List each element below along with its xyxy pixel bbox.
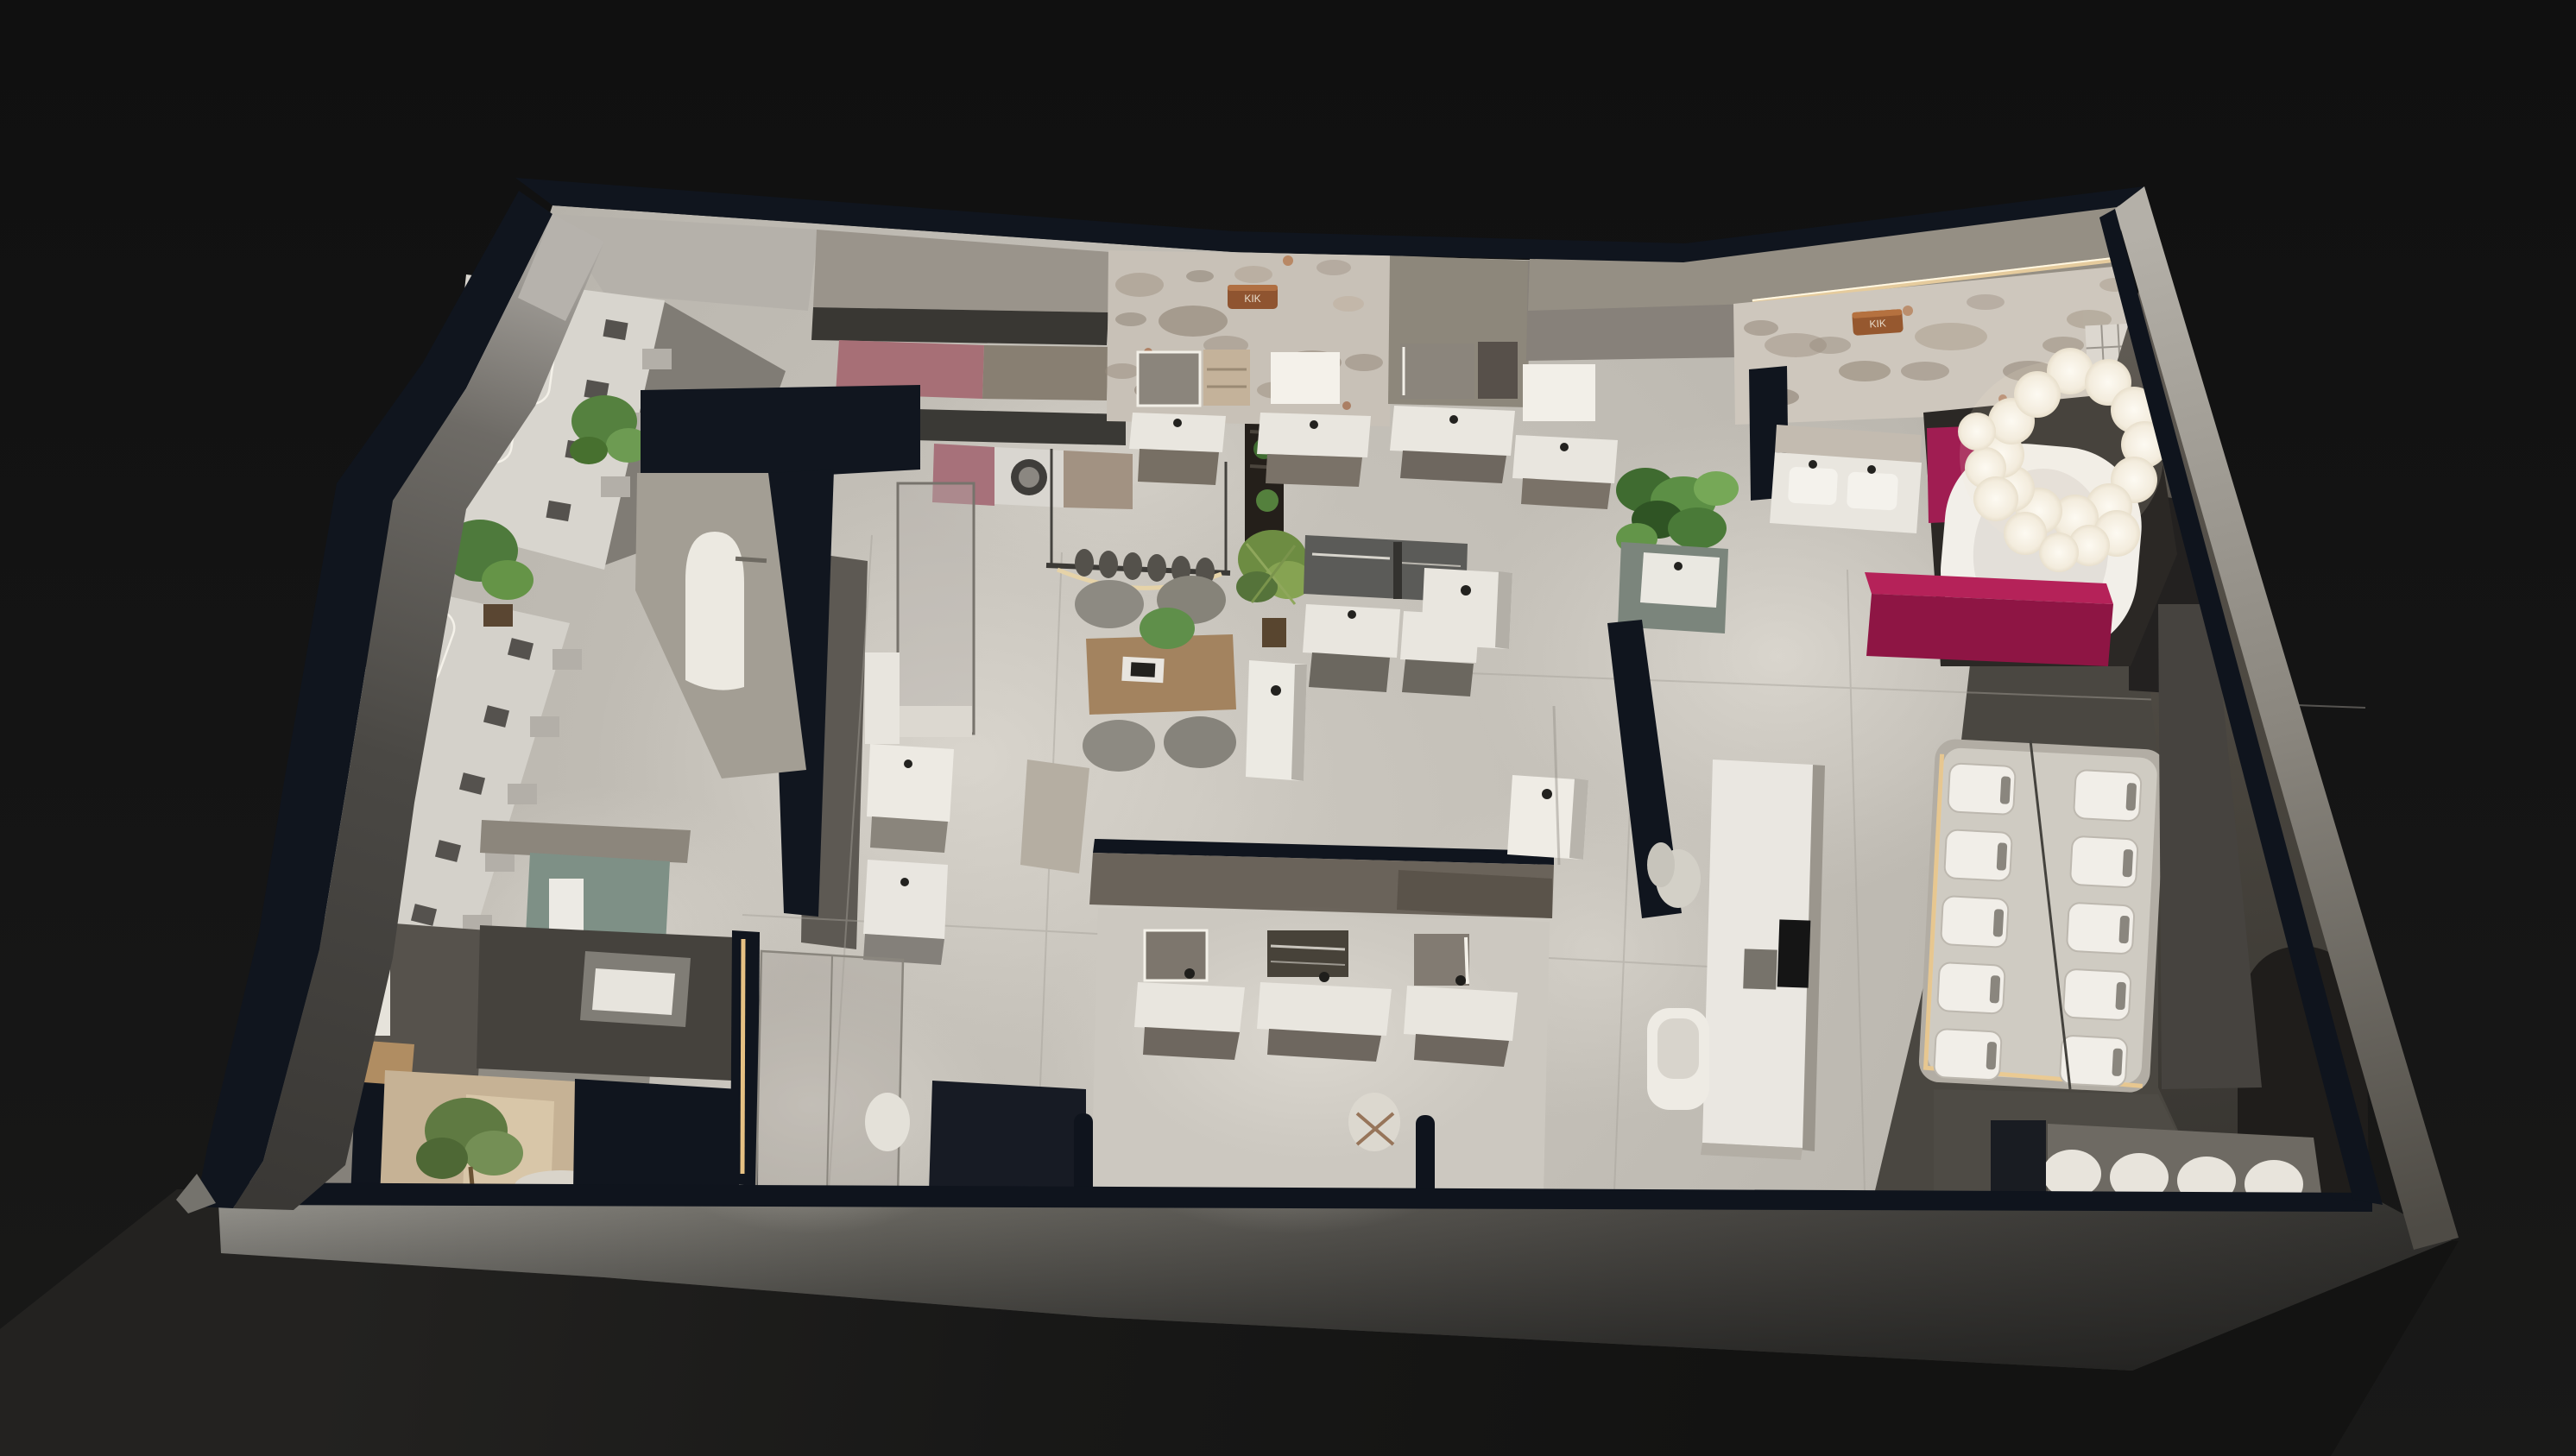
svg-text:KIK: KIK <box>1244 293 1260 305</box>
svg-text:KIK: KIK <box>1869 317 1886 330</box>
